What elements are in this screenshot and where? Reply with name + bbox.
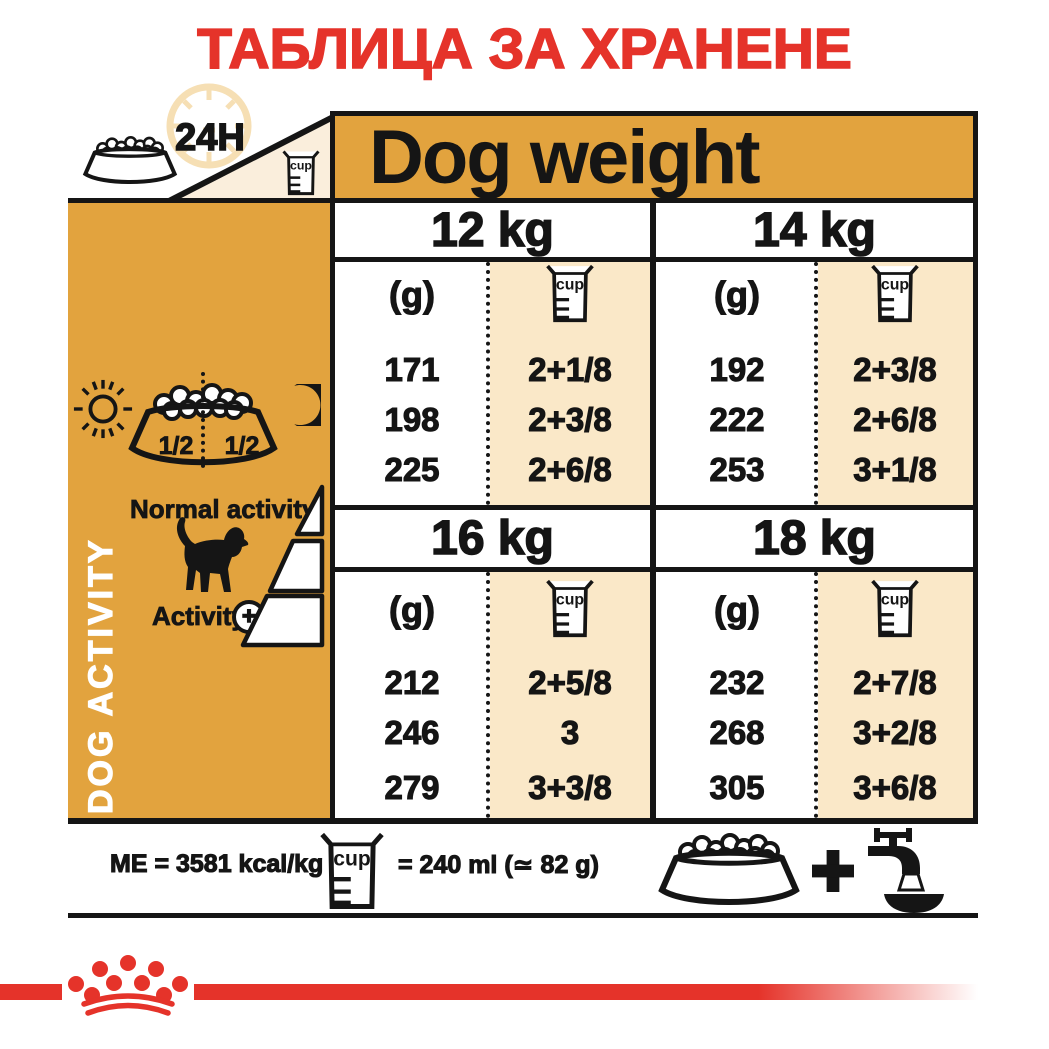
dog-activity-label: DOG ACTIVITY [82,468,118,814]
grams-value: 246 [352,715,472,751]
cup-icon: cup [276,150,326,198]
cups-value: 3+6/8 [825,770,965,806]
food-bowl-icon [652,832,806,912]
cups-value: 2+1/8 [500,352,640,388]
cups-value: 2+6/8 [825,402,965,438]
half-right-label: 1/2 [212,432,272,460]
cups-value: 2+6/8 [500,452,640,488]
grams-header: (g) [677,272,797,318]
weight-header-18kg: 18 kg [656,510,973,567]
grams-value: 268 [677,715,797,751]
grams-header: (g) [677,587,797,633]
svg-text:cup: cup [881,591,910,608]
column-dotted-separator [814,572,818,818]
cup-icon-label: cup [290,159,312,173]
cups-value: 3 [500,715,640,751]
cup-icon: cup [542,264,598,326]
cup-icon: cup [867,579,923,641]
cups-value: 2+7/8 [825,665,965,701]
page-title: ТАБЛИЦА ЗА ХРАНЕНЕ [0,16,1049,82]
grams-value: 171 [352,352,472,388]
grams-value: 225 [352,452,472,488]
cups-value: 2+5/8 [500,665,640,701]
table-border-right [973,198,978,823]
cup-icon: cup [542,579,598,641]
svg-text:cup: cup [881,276,910,293]
cups-value: 2+3/8 [500,402,640,438]
grams-value: 192 [677,352,797,388]
svg-text:cup: cup [556,591,585,608]
activity-level-triangles [238,483,326,648]
grams-value: 305 [677,770,797,806]
royal-canin-crown-logo [62,952,194,1018]
weight-header-12kg: 12 kg [335,203,650,257]
food-bowl-icon [80,122,180,202]
table-border-bottom [68,818,978,824]
cup-icon: cup [867,264,923,326]
dog-weight-label: Dog weight [335,114,759,201]
svg-text:cup: cup [556,276,585,293]
cups-value: 3+2/8 [825,715,965,751]
h24-label: 24H [170,118,250,158]
cups-value: 3+1/8 [825,452,965,488]
grams-value: 222 [677,402,797,438]
dog-weight-header: Dog weight [330,111,978,203]
plus-icon [812,850,854,892]
me-kcal-label: ME = 3581 kcal/kg [110,850,323,879]
sun-icon [72,378,134,440]
weight-header-16kg: 16 kg [335,510,650,567]
column-dotted-separator [486,262,490,505]
footer-divider-line [68,913,978,918]
column-dotted-separator [814,262,818,505]
cup-equivalence-label: = 240 ml (≃ 82 g) [398,850,599,880]
grams-value: 279 [352,770,472,806]
water-tap-icon [854,824,946,916]
grams-value: 198 [352,402,472,438]
moon-icon [279,384,321,426]
column-dotted-separator [486,572,490,818]
grams-header: (g) [352,587,472,633]
cups-value: 2+3/8 [825,352,965,388]
brand-stripe-left [0,984,62,1000]
half-left-label: 1/2 [146,432,206,460]
grams-value: 232 [677,665,797,701]
weight-header-14kg: 14 kg [656,203,973,257]
brand-stripe-right [194,984,978,1000]
grams-value: 253 [677,452,797,488]
feeding-table-page: ТАБЛИЦА ЗА ХРАНЕНЕ [0,0,1049,1049]
grams-header: (g) [352,272,472,318]
cups-value: 3+3/8 [500,770,640,806]
cup-icon: cup [314,832,390,914]
svg-text:cup: cup [333,848,371,871]
grams-value: 212 [352,665,472,701]
